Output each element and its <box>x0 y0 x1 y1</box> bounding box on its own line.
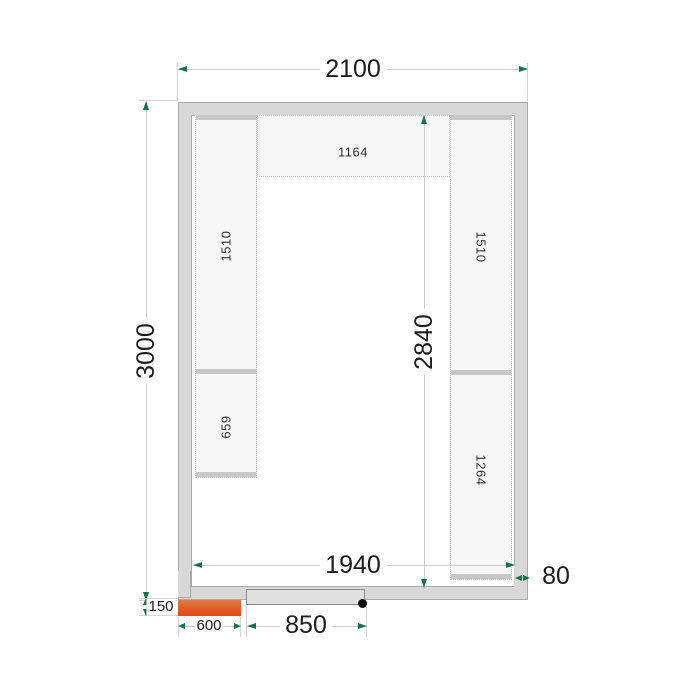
dim-unit-offset-label: 150 <box>146 599 175 615</box>
shelf-right-column <box>450 115 512 580</box>
dim-door-width-label: 850 <box>280 612 332 638</box>
dim-arrow-up-icon <box>143 101 149 110</box>
dim-unit-width-label: 600 <box>194 618 223 634</box>
shelf-top-label: 1164 <box>338 145 368 160</box>
dim-inner-length-label: 2840 <box>411 309 437 375</box>
shelf-support-bar <box>196 115 256 120</box>
door-leaf <box>246 589 365 605</box>
shelf-support-bar <box>196 369 256 374</box>
dim-arrow-right-icon <box>523 575 530 581</box>
extension-line <box>366 607 367 637</box>
dim-arrow-right-icon <box>358 623 367 629</box>
left-wall-corner <box>178 571 191 598</box>
shelf-left-lower-label: 659 <box>219 415 234 438</box>
shelf-left-upper-label: 1510 <box>219 231 234 262</box>
shelf-support-bar <box>196 472 256 477</box>
shelf-support-bar <box>451 115 511 120</box>
extension-line <box>246 607 247 637</box>
dim-arrow-up-icon <box>421 115 427 124</box>
dim-inner-width-label: 1940 <box>320 552 386 578</box>
dim-arrow-left-icon <box>247 623 256 629</box>
dim-arrow-left-icon <box>178 66 187 72</box>
dim-outer-length-label: 3000 <box>133 318 159 384</box>
dim-arrow-left-icon <box>193 562 202 568</box>
floor-plan-canvas: 1164 1510 659 1510 1264 2100 3000 2840 1… <box>0 0 700 700</box>
dim-arrow-left-icon <box>178 623 185 629</box>
dim-arrow-left-icon <box>515 575 522 581</box>
shelf-right-lower-label: 1264 <box>474 455 489 486</box>
dim-wall-thickness-label: 80 <box>537 563 575 589</box>
shelf-right-upper-label: 1510 <box>474 232 489 263</box>
dim-outer-width-label: 2100 <box>320 56 386 82</box>
dim-arrow-right-icon <box>506 562 515 568</box>
shelf-support-bar <box>451 370 511 375</box>
dim-arrow-down-icon <box>421 579 427 588</box>
dim-arrow-right-icon <box>234 623 241 629</box>
dim-arrow-right-icon <box>519 66 528 72</box>
shelf-support-bar <box>451 574 511 579</box>
